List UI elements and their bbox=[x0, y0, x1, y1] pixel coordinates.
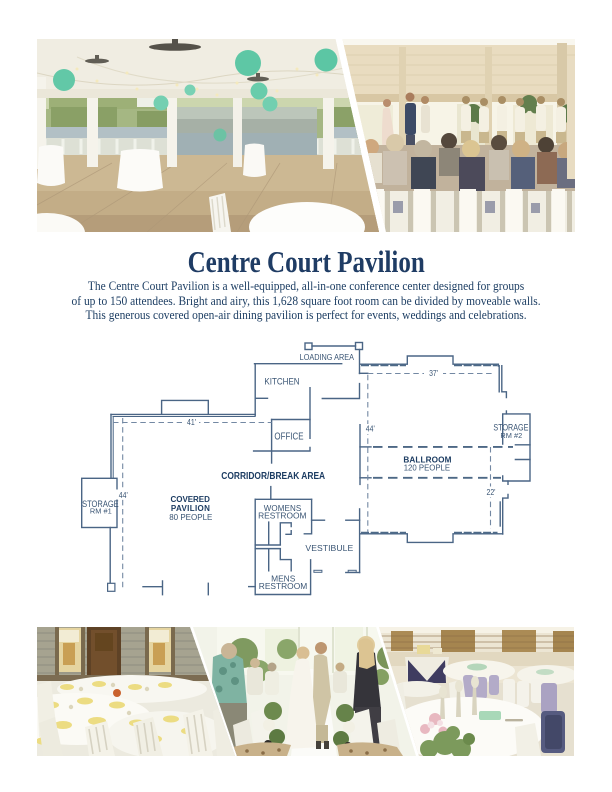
svg-text:120 PEOPLE: 120 PEOPLE bbox=[404, 463, 450, 472]
svg-text:41': 41' bbox=[187, 418, 197, 428]
svg-text:RESTROOM: RESTROOM bbox=[259, 581, 307, 591]
svg-text:VESTIBULE: VESTIBULE bbox=[305, 543, 353, 553]
svg-text:RM #2: RM #2 bbox=[500, 431, 522, 440]
svg-text:LOADING AREA: LOADING AREA bbox=[300, 352, 355, 362]
svg-text:KITCHEN: KITCHEN bbox=[264, 376, 299, 387]
svg-text:COVERED: COVERED bbox=[171, 495, 211, 504]
svg-text:RESTROOM: RESTROOM bbox=[258, 510, 306, 520]
svg-text:RM #1: RM #1 bbox=[90, 507, 112, 516]
svg-text:22': 22' bbox=[486, 488, 496, 498]
svg-text:OFFICE: OFFICE bbox=[274, 431, 303, 442]
svg-text:CORRIDOR/BREAK AREA: CORRIDOR/BREAK AREA bbox=[221, 470, 325, 481]
svg-text:37': 37' bbox=[429, 369, 439, 379]
svg-text:PAVILION: PAVILION bbox=[171, 504, 210, 513]
svg-text:44': 44' bbox=[119, 491, 129, 501]
svg-text:80 PEOPLE: 80 PEOPLE bbox=[169, 513, 212, 522]
svg-text:44': 44' bbox=[366, 424, 376, 434]
